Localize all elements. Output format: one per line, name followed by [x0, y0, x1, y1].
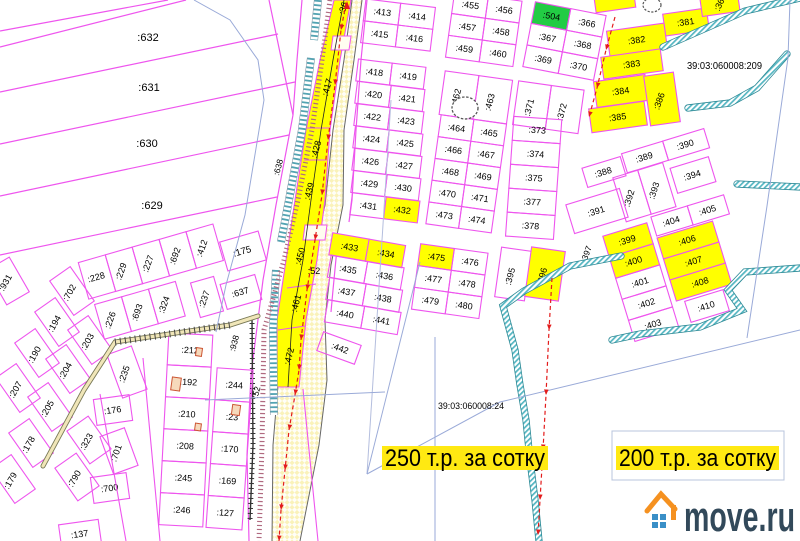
svg-text::426: :426	[361, 155, 380, 167]
svg-text::425: :425	[396, 137, 415, 149]
svg-text:39:03:060008:24: 39:03:060008:24	[438, 401, 504, 412]
svg-text:250 т.р. за сотку: 250 т.р. за сотку	[385, 445, 545, 472]
svg-text:200 т.р. за сотку: 200 т.р. за сотку	[619, 445, 776, 472]
svg-text::631: :631	[138, 82, 159, 94]
svg-text::246: :246	[173, 504, 191, 515]
svg-text::416: :416	[405, 32, 424, 44]
svg-text::432: :432	[393, 204, 412, 216]
svg-text::423: :423	[397, 115, 416, 127]
svg-text::431: :431	[359, 200, 378, 212]
svg-text::424: :424	[362, 133, 381, 145]
svg-text::420: :420	[364, 88, 383, 100]
svg-text::208: :208	[176, 441, 194, 452]
svg-text::375: :375	[525, 172, 543, 183]
svg-text::374: :374	[526, 148, 544, 159]
svg-text::245: :245	[174, 473, 192, 484]
svg-text::418: :418	[365, 66, 384, 78]
svg-text::632: :632	[137, 32, 158, 44]
svg-text::422: :422	[363, 111, 382, 123]
svg-text::421: :421	[398, 93, 417, 105]
svg-text::127: :127	[216, 507, 234, 518]
svg-text:39:03:060008:209: 39:03:060008:209	[687, 61, 762, 72]
svg-text::429: :429	[360, 178, 379, 190]
svg-text::210: :210	[178, 409, 196, 420]
svg-text:move.ru: move.ru	[684, 493, 795, 540]
svg-text::192: :192	[179, 377, 197, 388]
svg-text::630: :630	[136, 138, 157, 150]
svg-text::169: :169	[218, 475, 236, 486]
svg-text::378: :378	[521, 220, 539, 231]
svg-text::427: :427	[395, 159, 414, 171]
svg-text::414: :414	[408, 10, 427, 22]
svg-text::244: :244	[225, 380, 243, 391]
svg-text::415: :415	[370, 28, 389, 40]
svg-text::413: :413	[373, 6, 392, 18]
svg-text::629: :629	[141, 200, 162, 212]
svg-text::377: :377	[523, 196, 541, 207]
svg-text::430: :430	[394, 182, 413, 194]
svg-text::373: :373	[528, 125, 546, 136]
svg-text::170: :170	[221, 443, 239, 454]
svg-text::419: :419	[399, 70, 418, 82]
